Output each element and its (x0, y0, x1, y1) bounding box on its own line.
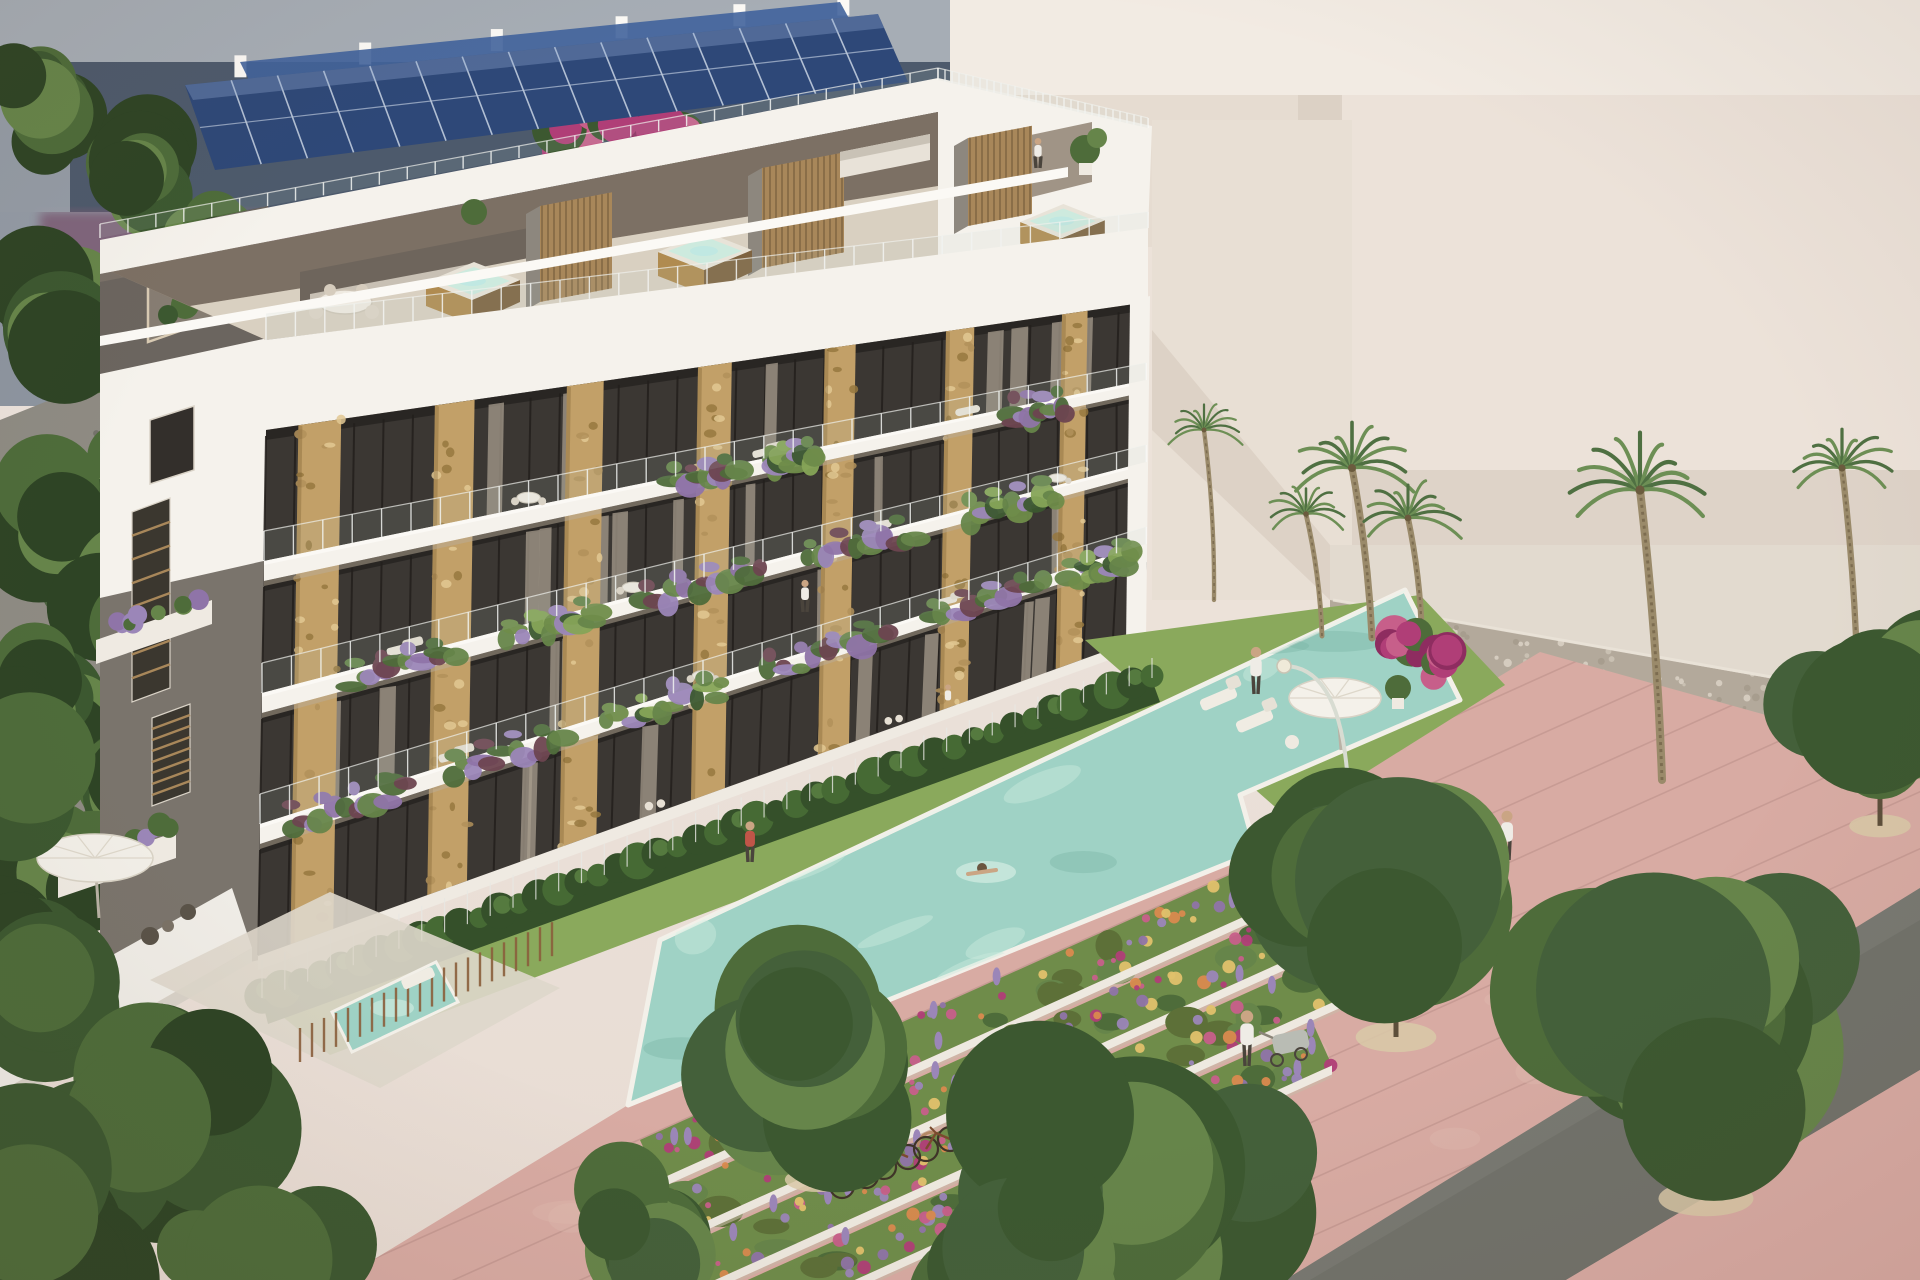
vignette (0, 0, 1920, 1280)
rendered-scene (0, 0, 1920, 1280)
scene-canvas (0, 0, 1920, 1280)
